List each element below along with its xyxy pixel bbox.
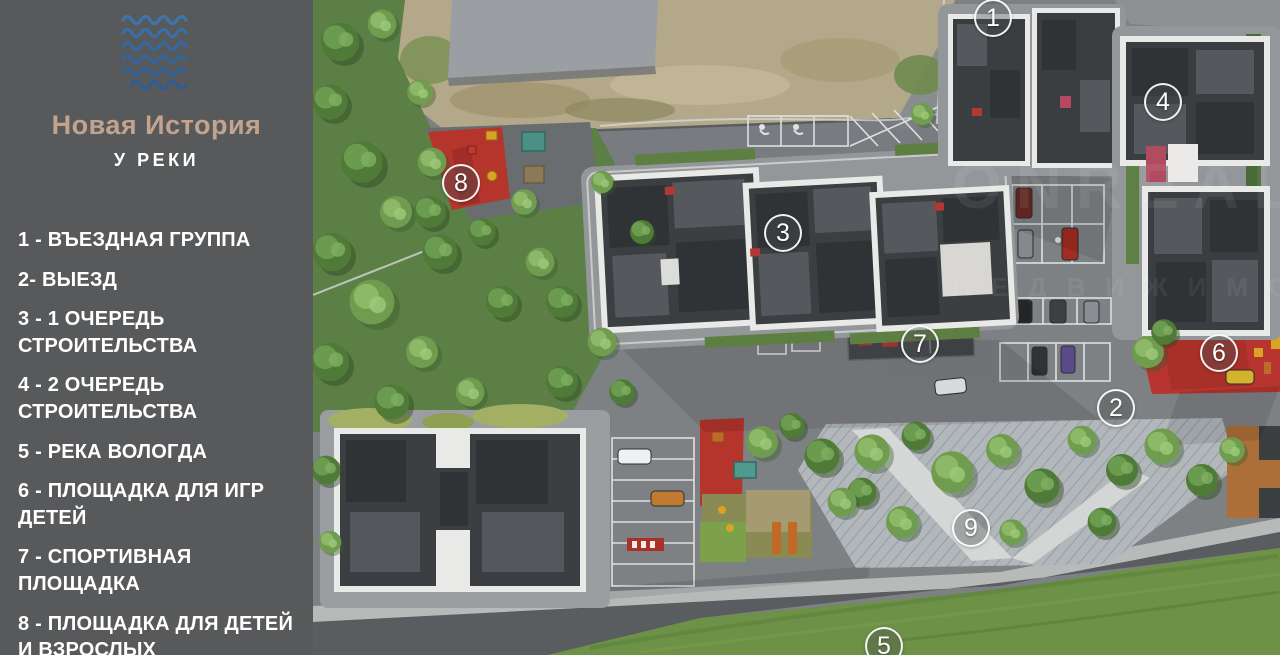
site-plan-render: ONREAL НЕДВИЖИМОСТЬ	[313, 0, 1280, 655]
legend-item-7: 7 - СПОРТИВНАЯ ПЛОЩАДКА	[18, 544, 305, 597]
legend-item-8: 8 - ПЛОЩАДКА ДЛЯ ДЕТЕЙ И ВЗРОСЛЫХ	[18, 611, 305, 655]
exit-road-marking	[627, 538, 664, 551]
brand-subtitle: У РЕКИ	[0, 150, 313, 171]
waves-icon	[119, 14, 195, 96]
legend: 1 - ВЪЕЗДНАЯ ГРУППА 2- ВЫЕЗД 3 - 1 ОЧЕРЕ…	[0, 227, 313, 655]
legend-item-3: 3 - 1 ОЧЕРЕДЬ СТРОИТЕЛЬСТВА	[18, 306, 305, 359]
svg-text:НЕДВИЖИМОСТЬ: НЕДВИЖИМОСТЬ	[952, 272, 1280, 302]
site-plan: ONREAL НЕДВИЖИМОСТЬ 1 2 3 4 5 6 7 8 9	[313, 0, 1280, 655]
map-marker-2: 2	[1097, 389, 1135, 427]
map-marker-6: 6	[1200, 334, 1238, 372]
legend-item-1: 1 - ВЪЕЗДНАЯ ГРУППА	[18, 227, 305, 254]
brand-logo	[0, 14, 313, 96]
legend-item-5: 5 - РЕКА ВОЛОГДА	[18, 439, 305, 466]
marker-number: 2	[1109, 394, 1123, 423]
map-marker-1: 1	[974, 0, 1012, 37]
legend-item-2: 2- ВЫЕЗД	[18, 267, 305, 294]
marker-number: 6	[1212, 339, 1226, 368]
marker-number: 8	[454, 169, 468, 198]
map-marker-7: 7	[901, 325, 939, 363]
legend-item-6: 6 - ПЛОЩАДКА ДЛЯ ИГР ДЕТЕЙ	[18, 478, 305, 531]
marker-number: 9	[964, 514, 978, 543]
marker-number: 4	[1156, 88, 1170, 117]
marker-number: 3	[776, 219, 790, 248]
building-bottom-left	[320, 404, 610, 608]
map-marker-3: 3	[764, 214, 802, 252]
map-marker-4: 4	[1144, 83, 1182, 121]
existing-building-roof	[448, 0, 658, 78]
legend-item-4: 4 - 2 ОЧЕРЕДЬ СТРОИТЕЛЬСТВА	[18, 372, 305, 425]
marker-number: 5	[877, 632, 891, 655]
map-marker-9: 9	[952, 509, 990, 547]
brand-title: Новая История	[0, 110, 313, 141]
marker-number: 1	[986, 4, 1000, 33]
sidebar: Новая История У РЕКИ 1 - ВЪЕЗДНАЯ ГРУППА…	[0, 0, 313, 655]
map-marker-8: 8	[442, 164, 480, 202]
marker-number: 7	[913, 330, 927, 359]
page: Новая История У РЕКИ 1 - ВЪЕЗДНАЯ ГРУППА…	[0, 0, 1280, 655]
svg-text:ONREAL: ONREAL	[952, 150, 1280, 222]
